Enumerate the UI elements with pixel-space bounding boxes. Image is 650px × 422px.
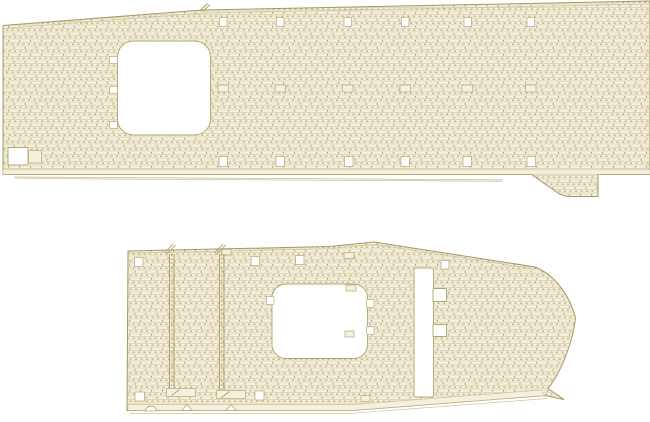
fitting-rect-marking bbox=[343, 85, 354, 92]
fitting-rect-marking bbox=[462, 85, 473, 92]
fitting-rect-marking bbox=[29, 151, 42, 164]
thin-strip-part bbox=[15, 177, 502, 181]
cutout-tab bbox=[367, 327, 375, 335]
fitting-rect-marking bbox=[346, 285, 356, 291]
fitting-rect-marking bbox=[345, 331, 354, 337]
corner-notch bbox=[8, 148, 28, 166]
cutout-tab bbox=[110, 122, 118, 129]
side-channel bbox=[414, 268, 434, 397]
fitting-rect-marking bbox=[526, 85, 537, 92]
upper-flight-deck bbox=[3, 1, 650, 197]
fitting-square-cutout bbox=[401, 157, 410, 167]
fitting-square-cutout bbox=[441, 261, 449, 270]
cutout-tab bbox=[367, 300, 375, 308]
fitting-rect-marking bbox=[218, 85, 229, 92]
fitting-square-cutout bbox=[345, 157, 354, 167]
elevator-cutout bbox=[272, 284, 368, 359]
fitting-rect-marking bbox=[400, 85, 411, 92]
upper-flight-deck-outline bbox=[3, 1, 650, 197]
deck-plan-canvas bbox=[0, 0, 650, 422]
elevator-cutout bbox=[118, 41, 211, 135]
fitting-square-cutout bbox=[527, 18, 535, 27]
fitting-square-cutout bbox=[219, 157, 228, 167]
fitting-square-cutout bbox=[464, 18, 472, 27]
fitting-square-cutout bbox=[276, 157, 285, 167]
fitting-rect-marking bbox=[361, 396, 370, 402]
track-end-hook bbox=[217, 391, 246, 399]
channel-notch bbox=[433, 325, 447, 337]
fitting-square-cutout bbox=[344, 18, 352, 27]
cutout-tab bbox=[110, 57, 118, 64]
fitting-square-cutout bbox=[296, 256, 305, 265]
fitting-rect-marking bbox=[222, 250, 231, 256]
fitting-square-cutout bbox=[220, 18, 228, 27]
channel-notch bbox=[433, 289, 447, 302]
fitting-square-cutout bbox=[463, 157, 472, 167]
border-band bbox=[3, 170, 650, 174]
fitting-square-cutout bbox=[251, 257, 260, 266]
fitting-square-cutout bbox=[255, 391, 264, 400]
deck-sheet-svg bbox=[0, 0, 650, 422]
fitting-square-cutout bbox=[135, 258, 144, 267]
fitting-square-cutout bbox=[402, 18, 410, 27]
fitting-rect-marking bbox=[344, 253, 354, 259]
cutout-tab bbox=[110, 87, 118, 94]
track-end-hook bbox=[167, 389, 196, 397]
cutout-tab bbox=[267, 297, 275, 305]
fitting-square-cutout bbox=[527, 157, 536, 167]
lower-flight-deck bbox=[127, 242, 576, 414]
fitting-square-cutout bbox=[135, 392, 145, 401]
fitting-rect-marking bbox=[275, 85, 286, 92]
fitting-square-cutout bbox=[277, 18, 285, 27]
